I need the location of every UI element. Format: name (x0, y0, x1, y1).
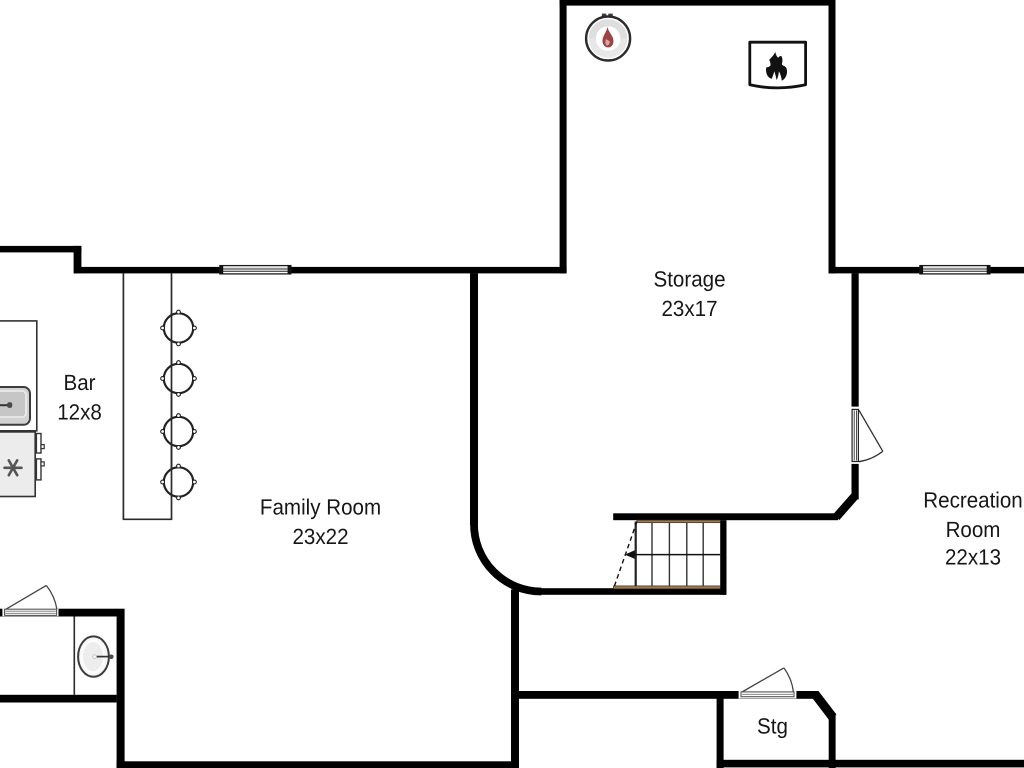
svg-text:12x8: 12x8 (57, 400, 102, 425)
svg-text:Family Room: Family Room (260, 495, 381, 520)
svg-text:Recreation: Recreation (923, 488, 1022, 513)
svg-text:Storage: Storage (653, 267, 725, 292)
svg-text:22x13: 22x13 (945, 545, 1001, 570)
svg-text:Bar: Bar (63, 370, 95, 395)
svg-text:Stg: Stg (757, 714, 788, 739)
svg-text:Room: Room (946, 517, 1001, 542)
svg-text:23x17: 23x17 (661, 296, 717, 321)
svg-text:23x22: 23x22 (292, 524, 348, 549)
